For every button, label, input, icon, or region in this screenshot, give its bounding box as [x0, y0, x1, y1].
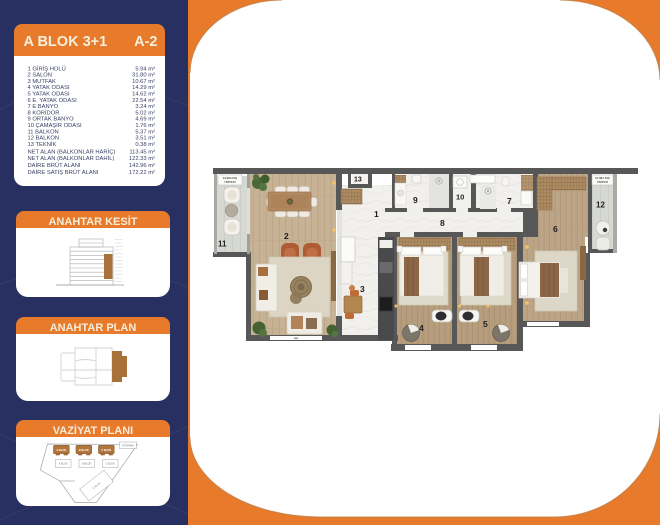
svg-text:ÜNİTESİ: ÜNİTESİ: [224, 179, 235, 184]
svg-text:4 YATAK ODASI: 4 YATAK ODASI: [28, 85, 70, 91]
svg-text:6: 6: [553, 224, 558, 234]
svg-text:5.37 m²: 5.37 m²: [135, 129, 155, 135]
svg-text:A BLOK 3+1: A BLOK 3+1: [24, 34, 108, 50]
svg-text:A-2: A-2: [134, 34, 157, 50]
svg-text:DAİRE BRÜT ALANI: DAİRE BRÜT ALANI: [28, 162, 81, 169]
svg-text:6 E. YATAK ODASI: 6 E. YATAK ODASI: [28, 98, 78, 104]
svg-text:7 E.BANYO: 7 E.BANYO: [28, 104, 59, 110]
svg-text:14.29 m²: 14.29 m²: [132, 85, 155, 91]
svg-text:4.69 m²: 4.69 m²: [135, 117, 155, 123]
svg-text:9: 9: [413, 195, 418, 205]
svg-text:12 BALKON: 12 BALKON: [28, 136, 60, 142]
svg-text:0.38 m²: 0.38 m²: [135, 142, 155, 148]
svg-text:3 MUTFAK: 3 MUTFAK: [28, 79, 56, 85]
svg-text:1 GİRİŞ HOLÜ: 1 GİRİŞ HOLÜ: [28, 65, 66, 72]
svg-text:14.62 m²: 14.62 m²: [132, 92, 155, 98]
svg-text:A BLOK: A BLOK: [59, 463, 68, 466]
svg-text:7: 7: [507, 196, 512, 206]
svg-text:122.33 m²: 122.33 m²: [129, 156, 155, 162]
svg-text:31.80 m²: 31.80 m²: [132, 73, 155, 79]
svg-text:11: 11: [218, 240, 227, 249]
svg-text:1: 1: [374, 209, 379, 219]
svg-text:8 KORİDOR: 8 KORİDOR: [28, 109, 60, 116]
svg-text:5.94 m²: 5.94 m²: [135, 66, 155, 72]
svg-text:ÜNİTESİ: ÜNİTESİ: [597, 179, 608, 184]
svg-text:4: 4: [419, 323, 424, 333]
svg-text:8: 8: [440, 218, 445, 228]
svg-text:13: 13: [354, 177, 362, 184]
svg-text:C BLOK: C BLOK: [106, 463, 116, 466]
svg-text:3.51 m²: 3.51 m²: [135, 136, 155, 142]
svg-text:ANAHTAR PLAN: ANAHTAR PLAN: [50, 322, 137, 334]
svg-text:DAİRE SATIŞ BRÜT ALANI: DAİRE SATIŞ BRÜT ALANI: [28, 169, 99, 176]
svg-text:OTOPARK: OTOPARK: [122, 445, 134, 448]
svg-text:5: 5: [483, 319, 488, 329]
svg-text:NET ALAN (BALKONLAR DAHİL): NET ALAN (BALKONLAR DAHİL): [28, 155, 115, 162]
svg-text:22.54 m²: 22.54 m²: [132, 98, 155, 104]
svg-text:113.45 m²: 113.45 m²: [129, 149, 155, 155]
svg-text:13 TEKNİK: 13 TEKNİK: [28, 141, 57, 148]
svg-text:3.24 m²: 3.24 m²: [135, 104, 155, 110]
svg-text:3: 3: [360, 284, 365, 294]
svg-text:B BLOK: B BLOK: [79, 448, 89, 452]
svg-text:10: 10: [456, 193, 464, 202]
svg-text:142.96 m²: 142.96 m²: [129, 163, 155, 169]
svg-text:ANAHTAR KESİT: ANAHTAR KESİT: [48, 215, 137, 228]
svg-text:9 ORTAK BANYO: 9 ORTAK BANYO: [28, 117, 75, 123]
svg-text:12: 12: [596, 201, 605, 210]
svg-text:10 ÇAMAŞIR ODASI: 10 ÇAMAŞIR ODASI: [28, 123, 83, 129]
svg-text:11 BALKON: 11 BALKON: [28, 129, 59, 135]
svg-text:2: 2: [284, 231, 289, 241]
svg-text:1.76 m²: 1.76 m²: [135, 123, 155, 129]
svg-text:2 SALON: 2 SALON: [28, 73, 53, 79]
svg-text:B BLOK: B BLOK: [82, 463, 91, 466]
svg-text:5.02 m²: 5.02 m²: [135, 110, 155, 116]
svg-text:NET ALAN (BALKONLAR HARİÇ): NET ALAN (BALKONLAR HARİÇ): [28, 148, 116, 155]
svg-text:172.22 m²: 172.22 m²: [129, 170, 155, 176]
svg-text:A BLOK: A BLOK: [56, 448, 66, 452]
svg-text:C BLOK: C BLOK: [101, 448, 111, 452]
svg-text:5 YATAK ODASI: 5 YATAK ODASI: [28, 92, 70, 98]
svg-text:VAZİYAT PLANI: VAZİYAT PLANI: [53, 424, 133, 437]
svg-text:10.67 m²: 10.67 m²: [132, 79, 155, 85]
